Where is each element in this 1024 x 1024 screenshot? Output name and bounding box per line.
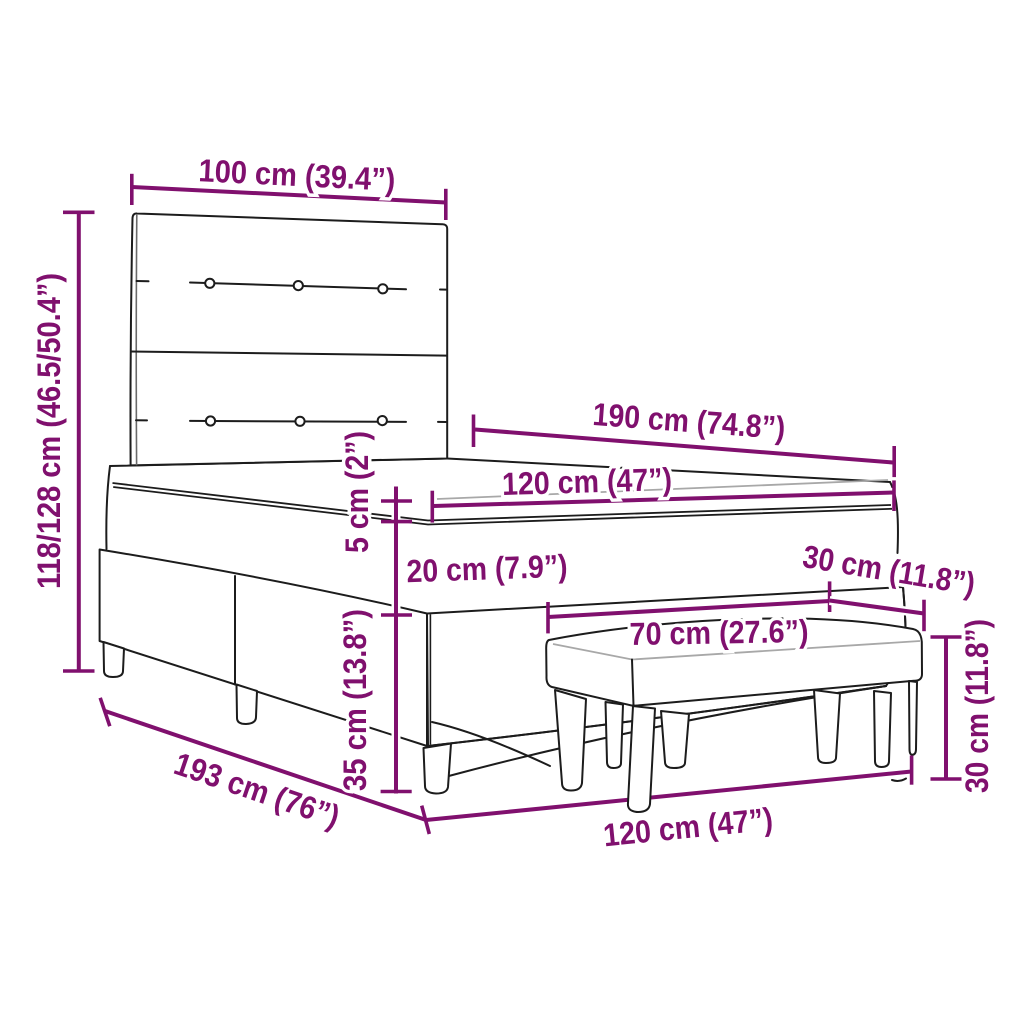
svg-text:118/128 cm (46.5/50.4”): 118/128 cm (46.5/50.4”) xyxy=(31,273,67,589)
svg-text:35 cm (13.8”): 35 cm (13.8”) xyxy=(337,609,373,791)
svg-text:70 cm (27.6”): 70 cm (27.6”) xyxy=(629,613,809,652)
svg-text:30 cm (11.8”): 30 cm (11.8”) xyxy=(959,619,995,793)
svg-text:120 cm (47”): 120 cm (47”) xyxy=(502,461,673,502)
svg-text:5 cm (2”): 5 cm (2”) xyxy=(339,431,375,553)
svg-text:20 cm (7.9”): 20 cm (7.9”) xyxy=(406,548,568,590)
